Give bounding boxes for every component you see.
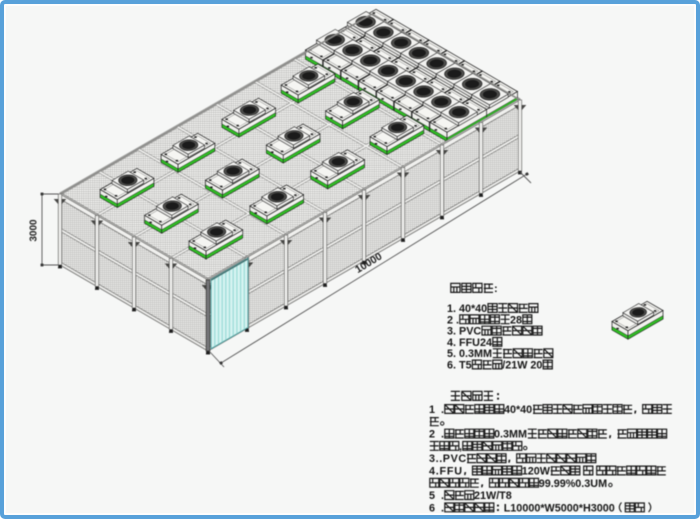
svg-text:6.: 6. (429, 502, 444, 514)
svg-text:5.: 5. (429, 490, 444, 502)
svg-text:2.: 2. (447, 314, 459, 326)
svg-text:4.FFU: 4.FFU (429, 466, 462, 478)
svg-text:99.99%0.3UM: 99.99%0.3UM (539, 478, 607, 490)
svg-text:2.: 2. (429, 429, 444, 441)
svg-text:L10000*W5000*H3000: L10000*W5000*H3000 (504, 502, 615, 514)
svg-text:,: , (459, 441, 462, 453)
svg-text:/21W 20: /21W 20 (502, 360, 542, 372)
svg-text:0.3MM: 0.3MM (494, 429, 527, 441)
svg-text:1.: 1. (429, 404, 444, 416)
svg-text:40*40: 40*40 (504, 404, 532, 416)
svg-text:4. FFU24: 4. FFU24 (447, 337, 492, 349)
svg-text::: : (494, 283, 498, 295)
svg-text:28: 28 (510, 314, 522, 326)
svg-text:3000: 3000 (29, 219, 40, 242)
svg-text:5. 0.3MM: 5. 0.3MM (447, 348, 492, 360)
svg-text:21W/T8: 21W/T8 (474, 490, 512, 502)
svg-text:1. 40*40: 1. 40*40 (447, 303, 487, 315)
svg-text:3. PVC: 3. PVC (447, 326, 481, 338)
svg-text:3..PVC: 3..PVC (429, 453, 466, 465)
svg-text:120W: 120W (522, 466, 551, 478)
svg-text:6. T5: 6. T5 (447, 360, 472, 372)
